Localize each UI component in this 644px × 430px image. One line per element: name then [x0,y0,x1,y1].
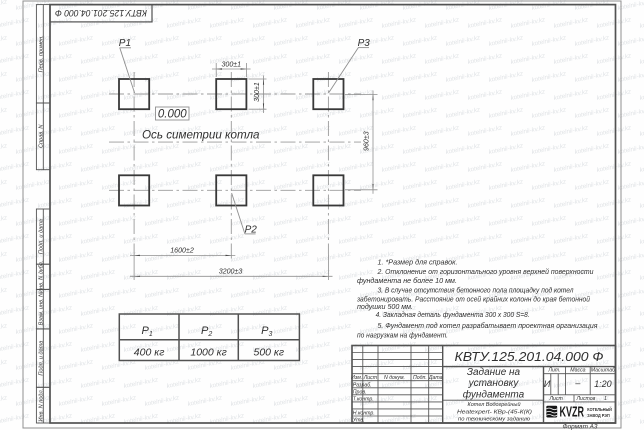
svg-text:КВТУ.125.201.04.000 Ф: КВТУ.125.201.04.000 Ф [455,350,604,364]
svg-text:Пров.: Пров. [353,389,367,395]
svg-text:3. В случае отсутствия бетонно: 3. В случае отсутствия бетонного пола пл… [378,285,575,294]
svg-text:2. Отклонение от горизонтально: 2. Отклонение от горизонтального уровня … [377,267,595,276]
svg-text:Разраб.: Разраб. [353,382,372,388]
svg-text:0.000: 0.000 [158,109,187,121]
svg-text:Изм.: Изм. [351,375,362,381]
svg-text:Подп.: Подп. [413,375,427,381]
svg-text:КВТУ.125.201.04.000 Ф: КВТУ.125.201.04.000 Ф [55,7,147,18]
svg-text:по техническому заданию: по техническому заданию [458,417,531,423]
svg-text:Задание на: Задание на [467,367,521,378]
svg-text:1:20: 1:20 [594,379,612,389]
svg-text:Н.контр.: Н.контр. [353,411,375,417]
svg-text:по нагрузкам на фундамент.: по нагрузкам на фундамент. [357,331,448,340]
svg-text:фундамента не более 10 мм.: фундамента не более 10 мм. [357,276,457,285]
svg-text:ЗАВОД РЭП: ЗАВОД РЭП [587,413,609,418]
svg-text:–: – [574,378,581,388]
svg-text:Котел Водогрейный: Котел Водогрейный [468,401,521,408]
svg-text:5. Фундамент под котел разраба: 5. Фундамент под котел разрабатывает про… [378,321,598,330]
svg-text:N докум.: N докум. [384,375,405,381]
svg-text:Масштаб: Масштаб [591,368,616,374]
svg-text:1. *Размер для справок.: 1. *Размер для справок. [378,258,458,267]
svg-text:P1: P1 [119,38,131,49]
svg-text:Формат А3: Формат А3 [563,424,598,430]
svg-text:300±1: 300±1 [221,61,241,69]
svg-text:КОТЕЛЬНЫЙ: КОТЕЛЬНЫЙ [587,405,612,412]
svg-text:Подп. и дата: Подп. и дата [39,219,45,254]
svg-text:Дата: Дата [428,375,443,381]
svg-text:1600±2: 1600±2 [170,247,194,255]
svg-text:P3: P3 [358,38,371,49]
svg-text:Листов: Листов [576,396,596,402]
svg-text:Инв. N подл.: Инв. N подл. [39,389,45,422]
svg-text:3200±3: 3200±3 [219,268,243,276]
svg-text:Перв. примен.: Перв. примен. [39,35,45,72]
svg-text:И: И [544,379,551,389]
svg-text:Т.контр.: Т.контр. [353,396,374,402]
svg-text:Лит.: Лит. [547,368,560,374]
svg-text:Heatexpert- КВр-(45-К(К): Heatexpert- КВр-(45-К(К) [457,409,532,415]
svg-text:Подп. и дата: Подп. и дата [39,341,45,376]
svg-text:фундамента: фундамента [463,388,525,400]
svg-text:400 кг: 400 кг [134,347,165,359]
svg-text:P2: P2 [245,224,258,235]
svg-text:KVZR: KVZR [560,405,585,421]
svg-text:Ось симетрии котла: Ось симетрии котла [142,130,260,142]
svg-text:Инв. N дубл.: Инв. N дубл. [39,261,45,293]
svg-text:Масса: Масса [570,368,585,374]
svg-text:300±1: 300±1 [253,82,261,102]
svg-text:Утв.: Утв. [353,418,365,424]
svg-text:установку: установку [468,378,520,389]
svg-text:Взам. инв. N: Взам. инв. N [39,292,45,326]
svg-text:Справ. N: Справ. N [39,124,45,148]
svg-text:500 кг: 500 кг [254,347,285,359]
svg-text:1000 кг: 1000 кг [190,347,226,359]
svg-text:Лист: Лист [549,396,564,402]
svg-text:960±3: 960±3 [362,131,370,151]
svg-text:Лист: Лист [363,375,378,381]
svg-text:4. Закладная деталь фундамента: 4. Закладная деталь фундамента 300 x 300… [376,310,530,319]
svg-text:1: 1 [604,396,607,402]
